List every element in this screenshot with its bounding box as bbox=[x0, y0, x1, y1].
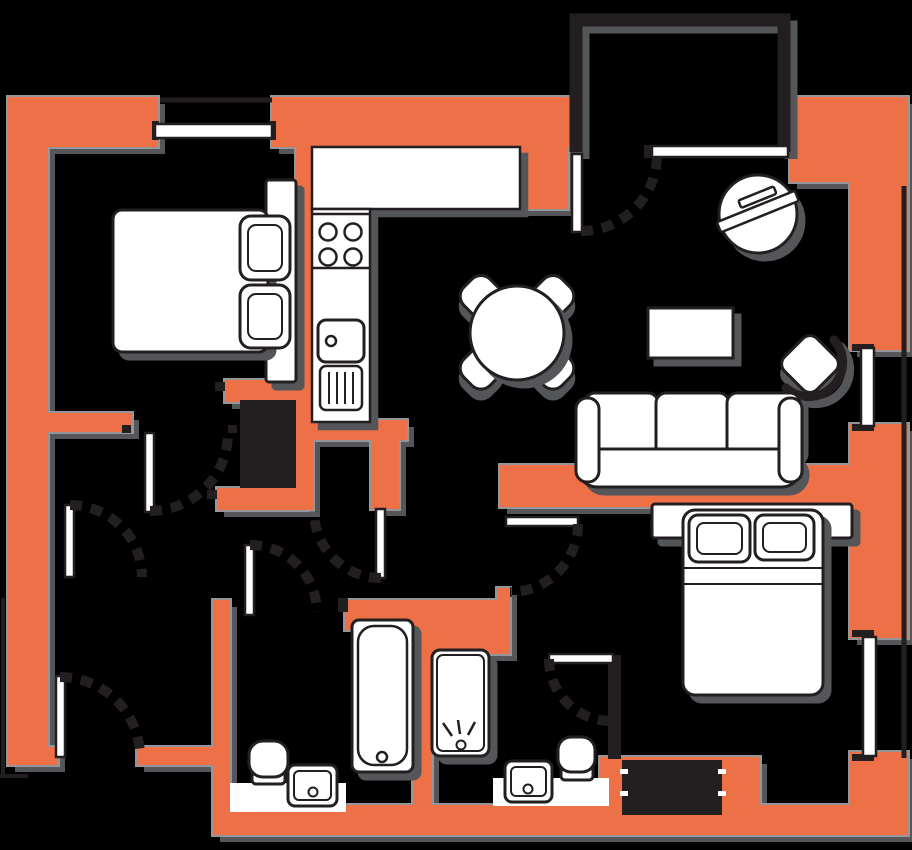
shadow-balcony-outline bbox=[583, 27, 791, 159]
door-leaf bbox=[65, 505, 74, 577]
dining-table bbox=[470, 286, 564, 380]
door-swing-arc bbox=[581, 155, 657, 231]
coffee-table bbox=[648, 308, 733, 358]
kitchen-drainer bbox=[320, 366, 362, 410]
door-leaf bbox=[56, 676, 65, 757]
stove-burner bbox=[345, 224, 362, 241]
door-leaf bbox=[572, 154, 582, 232]
door-leaf bbox=[245, 545, 254, 615]
utility-shaft bbox=[240, 400, 296, 488]
floor-plan bbox=[0, 0, 912, 850]
door-swing-arc bbox=[314, 511, 381, 578]
storage-unit bbox=[622, 760, 722, 815]
door-stop-tick bbox=[338, 598, 348, 612]
door-stop-tick bbox=[122, 425, 131, 433]
storage-tick bbox=[620, 791, 628, 796]
sofa-back bbox=[578, 449, 801, 487]
wall-hall-bath bbox=[213, 600, 230, 835]
balcony-outline bbox=[576, 20, 784, 152]
sofa-seat bbox=[656, 393, 729, 457]
wall-hall-pier bbox=[371, 432, 399, 509]
sofa-armrest bbox=[779, 398, 802, 482]
stove-burner bbox=[345, 249, 362, 266]
bathtub bbox=[352, 620, 413, 772]
window bbox=[863, 637, 876, 756]
door-swing-arc bbox=[549, 659, 611, 721]
washbasin-drain bbox=[309, 788, 318, 797]
bathroom2-black-wall bbox=[608, 655, 621, 759]
wall-bedroom1-bottom bbox=[40, 413, 132, 432]
kitchen-counter-top bbox=[312, 147, 520, 209]
wall-entry-band bbox=[137, 747, 213, 765]
storage-tick bbox=[620, 769, 628, 774]
storage-tick bbox=[718, 769, 726, 774]
door-stop-tick bbox=[228, 425, 237, 433]
bathtub-drain bbox=[377, 752, 387, 762]
door-leaf bbox=[376, 509, 385, 578]
wall-bathB-stub bbox=[497, 588, 510, 622]
stove-burner bbox=[320, 249, 337, 266]
door-leaf bbox=[506, 517, 578, 526]
wall-right-upper bbox=[850, 182, 908, 350]
storage-tick bbox=[718, 791, 726, 796]
door-swing-arc bbox=[510, 524, 578, 592]
window bbox=[155, 124, 272, 138]
floor-plan-svg bbox=[0, 0, 912, 850]
wall-top-right bbox=[790, 97, 908, 182]
window bbox=[861, 348, 874, 426]
washbasin-drain bbox=[524, 785, 533, 794]
stove-burner bbox=[320, 224, 337, 241]
door-stop-tick bbox=[215, 382, 225, 391]
wall-top-left bbox=[8, 97, 158, 147]
window bbox=[652, 146, 788, 157]
wall-shaft-bottom bbox=[217, 488, 313, 510]
door-leaf bbox=[145, 433, 154, 512]
door-swing-arc bbox=[60, 677, 140, 757]
door-stop-tick bbox=[207, 490, 217, 499]
kitchen-sink-tap bbox=[326, 336, 336, 346]
door-swing-arc bbox=[70, 505, 142, 577]
toilet-bowl bbox=[249, 741, 288, 777]
sofa-armrest bbox=[576, 398, 599, 482]
door-swing-arc bbox=[250, 545, 317, 612]
door-leaf bbox=[549, 654, 613, 663]
shower-drain bbox=[457, 741, 466, 750]
toilet-bowl bbox=[558, 737, 595, 772]
